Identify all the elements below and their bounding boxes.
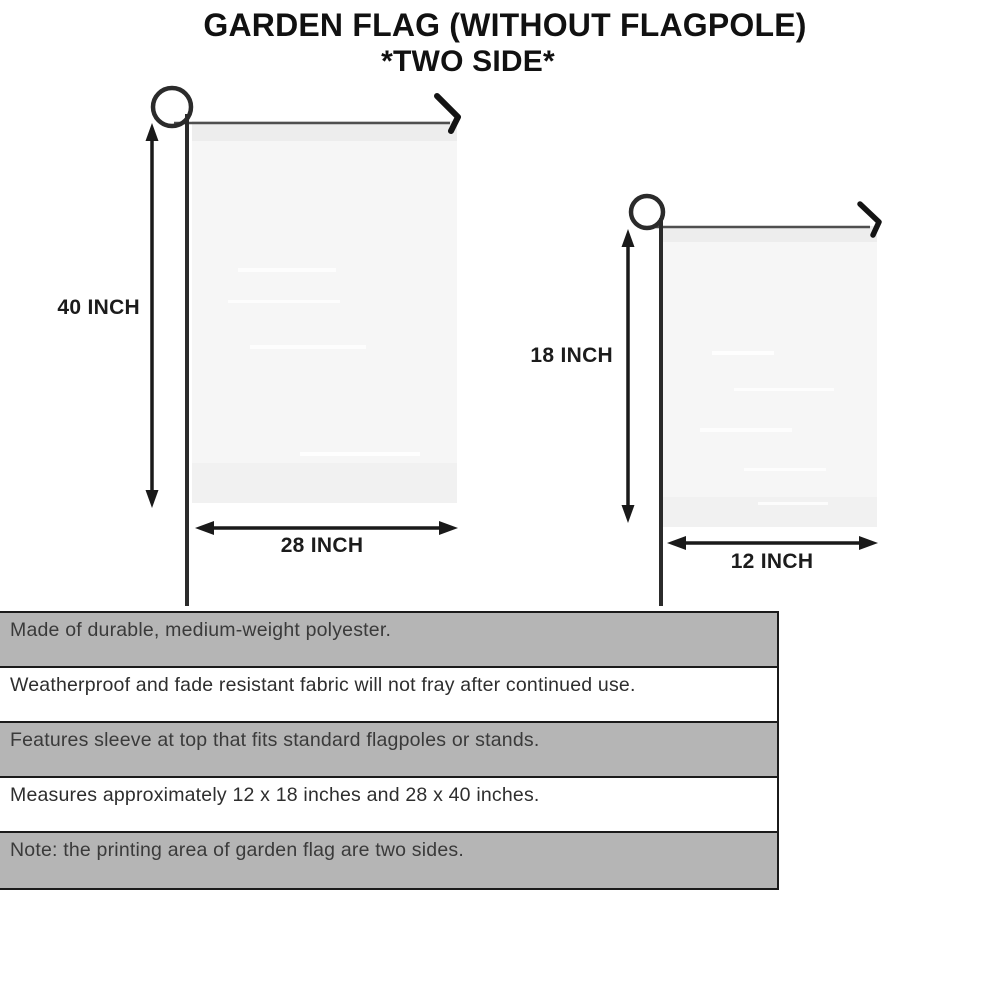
large-flag-canvas [192,121,457,503]
large-flag-height-arrow [146,123,159,508]
feature-text: Measures approximately 12 x 18 inches an… [10,784,540,806]
large-flag-bottom-shade [192,463,457,503]
feature-text: Note: the printing area of garden flag a… [10,839,464,861]
large-flag-width-arrow [195,521,458,535]
small-flag-height-arrow [622,229,635,523]
large-flag-group [146,88,459,606]
small-flag-sleeve [663,226,877,242]
feature-table: Made of durable, medium-weight polyester… [0,611,779,890]
feature-text: Weatherproof and fade resistant fabric w… [10,674,636,696]
feature-row: Made of durable, medium-weight polyester… [0,613,777,668]
small-flag-width-arrow [667,536,878,550]
feature-text: Features sleeve at top that fits standar… [10,729,539,751]
feature-row: Weatherproof and fade resistant fabric w… [0,668,777,723]
feature-row: Features sleeve at top that fits standar… [0,723,777,778]
small-flag-pole-loop-icon [631,196,663,228]
product-infographic: GARDEN FLAG (WITHOUT FLAGPOLE) *TWO SIDE… [0,0,1000,1000]
small-flag-width-label: 12 INCH [667,550,877,574]
large-flag-width-label: 28 INCH [190,534,454,558]
feature-text: Made of durable, medium-weight polyester… [10,619,391,641]
small-flag-canvas [663,226,877,527]
feature-row: Note: the printing area of garden flag a… [0,833,777,888]
small-flag-group [622,196,880,606]
feature-row: Measures approximately 12 x 18 inches an… [0,778,777,833]
small-flag-bottom-shade [663,497,877,527]
large-flag-height-label: 40 INCH [0,296,140,320]
small-flag-height-label: 18 INCH [473,344,613,368]
